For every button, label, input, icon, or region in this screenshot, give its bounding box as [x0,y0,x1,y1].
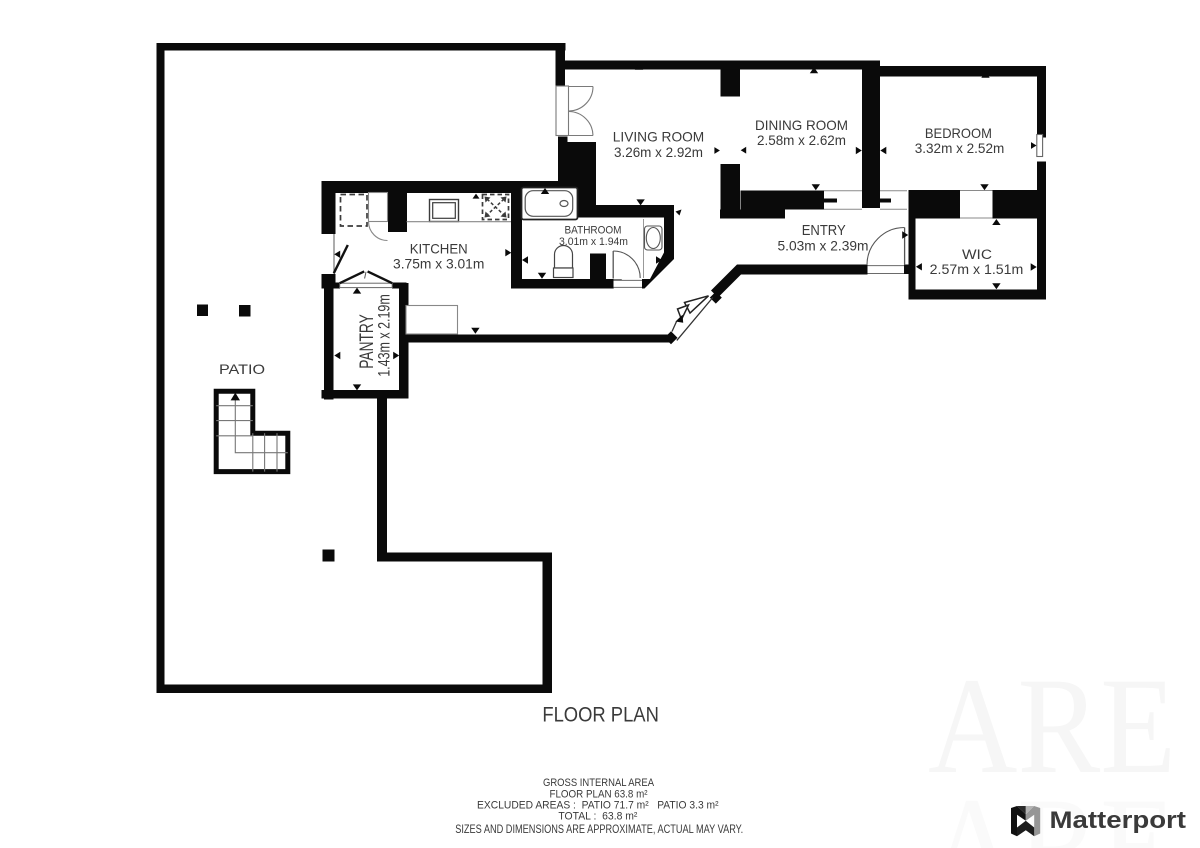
svg-text:ENTRY: ENTRY [802,223,846,239]
svg-text:1.43m x 2.19m: 1.43m x 2.19m [375,294,394,377]
svg-text:3.01m x 1.94m: 3.01m x 1.94m [559,236,628,248]
svg-text:BATHROOM: BATHROOM [565,225,622,237]
svg-text:2.58m x 2.62m: 2.58m x 2.62m [757,133,846,148]
svg-text:LIVING ROOM: LIVING ROOM [613,128,705,144]
svg-text:PATIO: PATIO [219,361,265,377]
svg-text:TOTAL : 63.8 m²: TOTAL : 63.8 m² [558,811,637,823]
svg-text:5.03m x 2.39m: 5.03m x 2.39m [778,238,869,253]
svg-text:Matterport: Matterport [1050,807,1187,834]
svg-text:3.75m x 3.01m: 3.75m x 3.01m [393,257,484,272]
svg-text:SIZES AND DIMENSIONS ARE APPRO: SIZES AND DIMENSIONS ARE APPROXIMATE, AC… [455,824,743,836]
svg-text:2.57m x 1.51m: 2.57m x 1.51m [930,262,1024,277]
svg-text:FLOOR PLAN 63.8 m²: FLOOR PLAN 63.8 m² [550,788,648,800]
svg-text:DINING ROOM: DINING ROOM [755,117,848,133]
svg-text:3.32m x 2.52m: 3.32m x 2.52m [915,141,1005,156]
svg-text:3.26m x 2.92m: 3.26m x 2.92m [614,145,703,160]
svg-text:FLOOR PLAN: FLOOR PLAN [542,702,659,726]
svg-text:BEDROOM: BEDROOM [925,125,992,141]
svg-text:GROSS INTERNAL AREA: GROSS INTERNAL AREA [543,777,655,789]
svg-text:KITCHEN: KITCHEN [410,241,468,257]
svg-text:WIC: WIC [962,247,992,262]
